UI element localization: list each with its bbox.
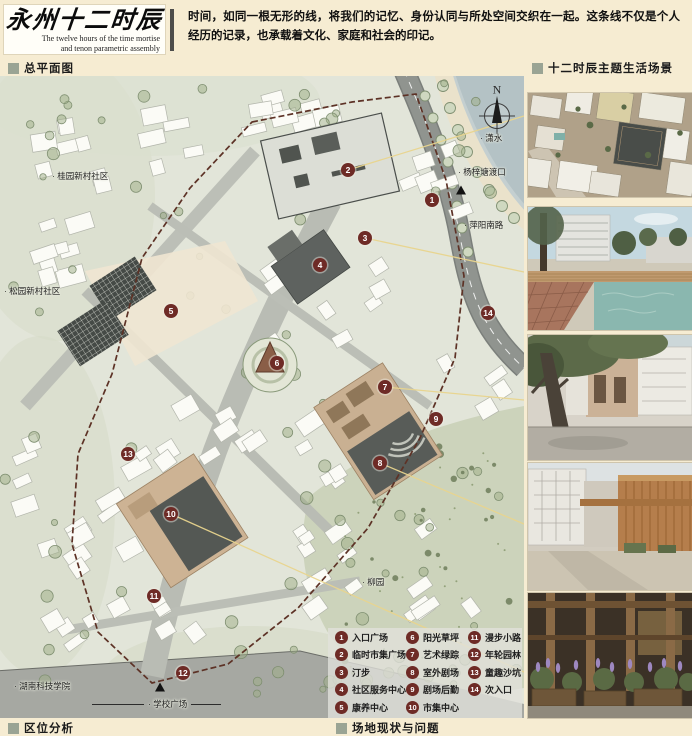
section-bullet-icon — [532, 63, 543, 74]
map-marker-6: 6 — [270, 356, 284, 370]
poster-page: 永州十二时辰 The twelve hours of the time mort… — [0, 0, 692, 736]
section-header-master-plan: 总平面图 — [8, 60, 74, 76]
map-label: · 杨梓塘渡口 — [458, 166, 506, 178]
map-marker-13: 13 — [121, 447, 135, 461]
section-header-location-analysis: 区位分析 — [8, 720, 74, 736]
intro-paragraph: 时间，如同一根无形的线，将我们的记忆、身份认同与所处空间交织在一起。这条线不仅是… — [188, 8, 680, 45]
master-plan-map: N 1入口广场2临时市集广场3汀步4社区服务中心5康养中心6阳光草坪7艺术绿踪8… — [0, 76, 524, 718]
legend-item-9: 9剧场后勤 — [406, 683, 459, 696]
scene-photo-street-tree — [528, 335, 692, 460]
section-header-site-status: 场地现状与问题 — [336, 720, 440, 736]
map-label: · 湖南科技学院 — [14, 680, 70, 692]
map-label: · 萍阳南路 — [464, 219, 503, 231]
map-marker-8: 8 — [373, 456, 387, 470]
title-block: 永州十二时辰 The twelve hours of the time mort… — [4, 5, 165, 54]
map-overlay: N 1入口广场2临时市集广场3汀步4社区服务中心5康养中心6阳光草坪7艺术绿踪8… — [0, 76, 524, 718]
section-bullet-icon — [8, 723, 19, 734]
poster-title-cn: 永州十二时辰 — [3, 6, 167, 34]
section-bullet-icon — [336, 723, 347, 734]
scene-photo-pool-plaza — [528, 207, 692, 330]
scene-photo-wooden-courtyard — [528, 463, 692, 590]
map-marker-12: 12 — [176, 666, 190, 680]
legend-item-12: 12年轮园林 — [468, 648, 521, 661]
map-marker-4: 4 — [313, 258, 327, 272]
legend-item-1: 1入口广场 — [335, 631, 388, 644]
map-marker-7: 7 — [378, 380, 392, 394]
map-label: · 潇水 — [480, 132, 502, 144]
map-marker-14: 14 — [481, 306, 495, 320]
map-label: · 桂园新村社区 — [52, 170, 108, 182]
legend-item-14: 14次入口 — [468, 683, 512, 696]
legend-item-13: 13童趣沙坑 — [468, 666, 521, 679]
entrance-triangle-icon — [155, 683, 165, 692]
legend-item-10: 10市集中心 — [406, 701, 459, 714]
compass-north-label: N — [493, 83, 502, 98]
legend-item-2: 2临时市集广场 — [335, 648, 406, 661]
legend-item-3: 3汀步 — [335, 666, 370, 679]
legend-item-8: 8室外剧场 — [406, 666, 459, 679]
scene-photo-aerial-village — [528, 93, 692, 197]
map-marker-11: 11 — [147, 589, 161, 603]
legend-item-4: 4社区服务中心 — [335, 683, 406, 696]
map-legend: 1入口广场2临时市集广场3汀步4社区服务中心5康养中心6阳光草坪7艺术绿踪8室外… — [328, 628, 522, 718]
map-marker-10: 10 — [164, 507, 178, 521]
map-label: · 松园新村社区 — [4, 285, 60, 297]
section-bullet-icon — [8, 63, 19, 74]
map-marker-2: 2 — [341, 163, 355, 177]
map-label: · 学校广场 — [92, 698, 221, 710]
legend-item-7: 7艺术绿踪 — [406, 648, 459, 661]
legend-item-11: 11漫步小路 — [468, 631, 521, 644]
title-divider-bar — [170, 9, 174, 51]
map-marker-3: 3 — [358, 231, 372, 245]
legend-item-5: 5康养中心 — [335, 701, 388, 714]
entrance-triangle-icon — [456, 186, 466, 195]
legend-item-6: 6阳光草坪 — [406, 631, 459, 644]
map-marker-1: 1 — [425, 193, 439, 207]
map-marker-9: 9 — [429, 412, 443, 426]
map-marker-5: 5 — [164, 304, 178, 318]
map-label: · 柳园 — [362, 576, 384, 588]
poster-title-en: The twelve hours of the time mortise and… — [4, 34, 165, 55]
scene-photo-pavilion-lavender — [528, 593, 692, 718]
section-header-scenes: 十二时辰主题生活场景 — [532, 60, 673, 76]
